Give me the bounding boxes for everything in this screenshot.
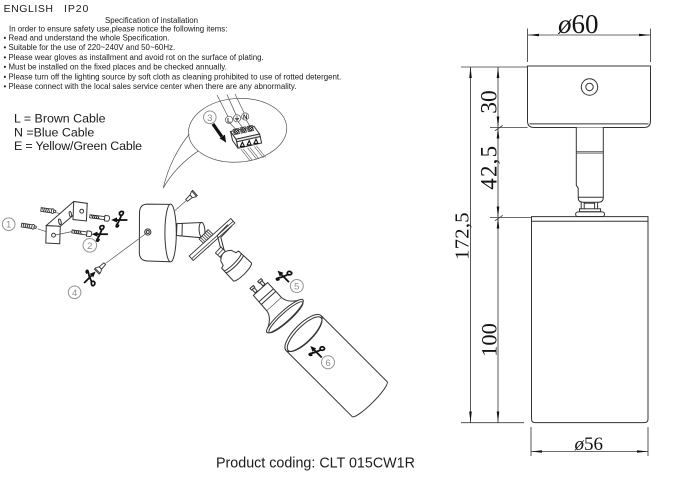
- svg-text:100: 100: [477, 323, 502, 357]
- svg-text:3: 3: [207, 113, 212, 124]
- svg-text:1: 1: [6, 220, 11, 231]
- svg-text:N =Blue Cable: N =Blue Cable: [14, 125, 94, 139]
- svg-text:5: 5: [294, 282, 299, 293]
- svg-text:ENGLISH: ENGLISH: [4, 3, 54, 15]
- svg-text:• Must be installed on the fix: • Must be installed on the fixed places …: [4, 63, 227, 72]
- svg-text:4: 4: [72, 288, 77, 299]
- svg-text:E = Yellow/Green Cable: E = Yellow/Green Cable: [14, 139, 142, 153]
- svg-text:6: 6: [325, 358, 330, 369]
- svg-text:172,5: 172,5: [451, 212, 473, 260]
- svg-text:42,5: 42,5: [477, 145, 502, 190]
- svg-text:ø60: ø60: [557, 9, 599, 39]
- svg-text:IP20: IP20: [64, 3, 89, 15]
- svg-text:• Please wear gloves as instal: • Please wear gloves as installment and …: [4, 53, 264, 62]
- svg-text:ø56: ø56: [574, 434, 604, 455]
- svg-text:In order to ensure safety use,: In order to ensure safety use,please not…: [9, 24, 227, 33]
- svg-text:L = Brown Cable: L = Brown Cable: [14, 112, 106, 126]
- svg-text:• Suitable for the use of 220~: • Suitable for the use of 220~240V and 5…: [4, 43, 176, 52]
- svg-text:• Please connect with the loca: • Please connect with the local sales se…: [4, 82, 297, 91]
- svg-text:Product coding: CLT 015CW1R: Product coding: CLT 015CW1R: [216, 456, 415, 472]
- svg-text:2: 2: [87, 241, 92, 252]
- svg-text:• Read and understand the whol: • Read and understand the whole Specific…: [4, 34, 170, 43]
- svg-text:• Please turn off the lighting: • Please turn off the lighting source by…: [4, 72, 342, 81]
- svg-text:N: N: [243, 114, 248, 121]
- svg-text:30: 30: [477, 90, 503, 114]
